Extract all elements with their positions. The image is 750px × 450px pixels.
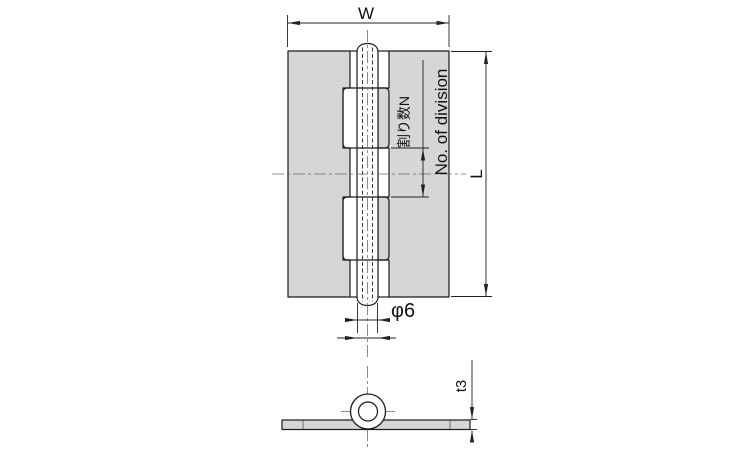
width-label: W [358, 4, 374, 23]
plan-view [288, 44, 449, 306]
thickness-label: t3 [453, 380, 470, 393]
division-label-en: No. of division [432, 69, 451, 176]
division-label-ja: 割り数N [396, 96, 412, 148]
hinge-drawing-page: W L 割り数N No. of division φ6 t3 [0, 0, 750, 450]
hinge-technical-drawing: W L 割り数N No. of division φ6 t3 [0, 0, 750, 450]
pin-diameter-label: φ6 [391, 300, 415, 322]
knuckle-pin-bore [359, 402, 378, 421]
length-label: L [467, 169, 486, 178]
side-view [282, 394, 470, 430]
